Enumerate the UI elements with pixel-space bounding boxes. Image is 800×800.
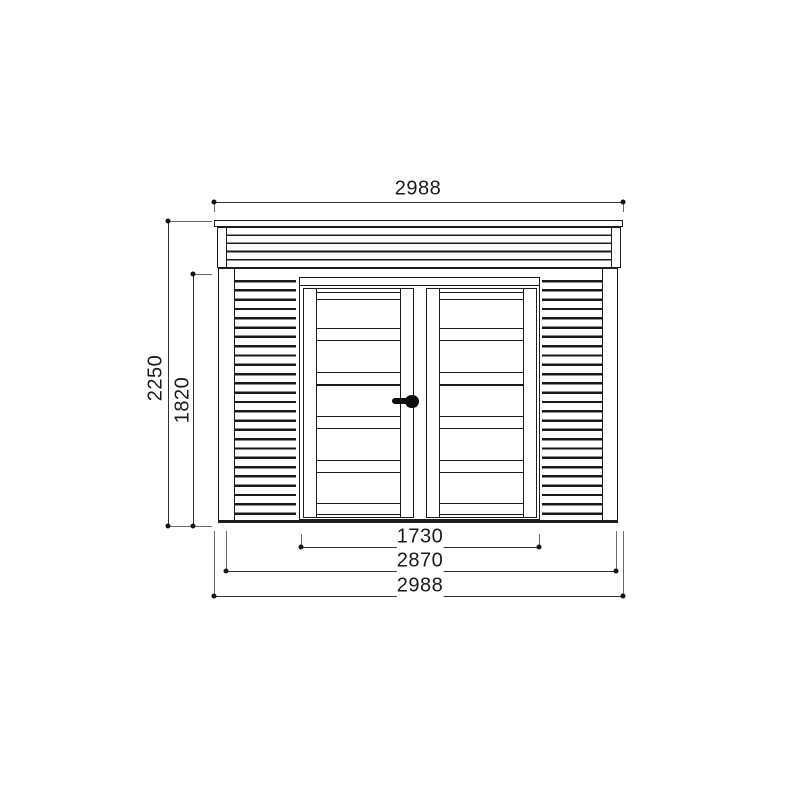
dim-endpoint — [212, 594, 217, 599]
dim-endpoint — [537, 545, 542, 550]
dim-tick — [193, 274, 212, 275]
dim-tick — [616, 531, 617, 571]
door-head-rail — [300, 278, 539, 286]
dim-label-door-frame-width: 1730 — [397, 526, 444, 549]
wall-siding-left — [235, 273, 296, 520]
door-stile — [304, 289, 317, 517]
corner-post-left — [219, 269, 235, 520]
door-frame — [299, 277, 540, 520]
door-rail — [440, 460, 523, 473]
dim-endpoint — [299, 545, 304, 550]
dim-label-wall-width: 2870 — [397, 550, 444, 573]
door-rail — [440, 503, 523, 515]
dim-label-overall-width: 2988 — [397, 575, 444, 598]
dim-label-wall-height: 1820 — [172, 377, 195, 424]
fascia-end-cap-right — [611, 228, 620, 267]
shed-front-elevation-drawing: 2988 2250 1820 1730 2870 2988 — [0, 0, 800, 800]
door-rail — [317, 460, 400, 473]
dim-line-overall-height — [168, 221, 169, 526]
fascia-boards — [227, 228, 611, 267]
dim-line-roof-width — [214, 202, 623, 203]
door-rail — [440, 292, 523, 300]
dim-tick — [226, 531, 227, 571]
dim-tick — [214, 531, 215, 596]
corner-post-right — [602, 269, 617, 520]
dim-endpoint — [166, 219, 171, 224]
door-stile — [523, 289, 536, 517]
dim-endpoint — [614, 569, 619, 574]
dim-endpoint — [224, 569, 229, 574]
door-stile — [427, 289, 440, 517]
fascia-band — [217, 227, 621, 268]
wall — [218, 268, 618, 523]
door-lock-rail — [440, 372, 523, 386]
dim-label-roof-width: 2988 — [395, 178, 442, 201]
fascia-end-cap-left — [218, 228, 227, 267]
dim-endpoint — [621, 594, 626, 599]
door-leaf-right — [426, 288, 537, 518]
dim-endpoint — [212, 200, 217, 205]
dim-endpoint — [191, 524, 196, 529]
door-rail — [317, 292, 400, 300]
door-handle-knob-icon — [405, 395, 419, 409]
door-rail — [317, 416, 400, 429]
door-rail — [440, 416, 523, 429]
dim-tick — [623, 531, 624, 596]
dim-endpoint — [191, 272, 196, 277]
door-rail — [317, 503, 400, 515]
wall-siding-right — [542, 273, 602, 520]
dim-tick — [168, 221, 212, 222]
door-rail — [317, 328, 400, 341]
dim-label-overall-height: 2250 — [145, 355, 168, 402]
dim-endpoint — [621, 200, 626, 205]
dim-endpoint — [166, 524, 171, 529]
door-lock-rail — [317, 372, 400, 386]
roof-cap — [214, 220, 623, 227]
door-rail — [440, 328, 523, 341]
